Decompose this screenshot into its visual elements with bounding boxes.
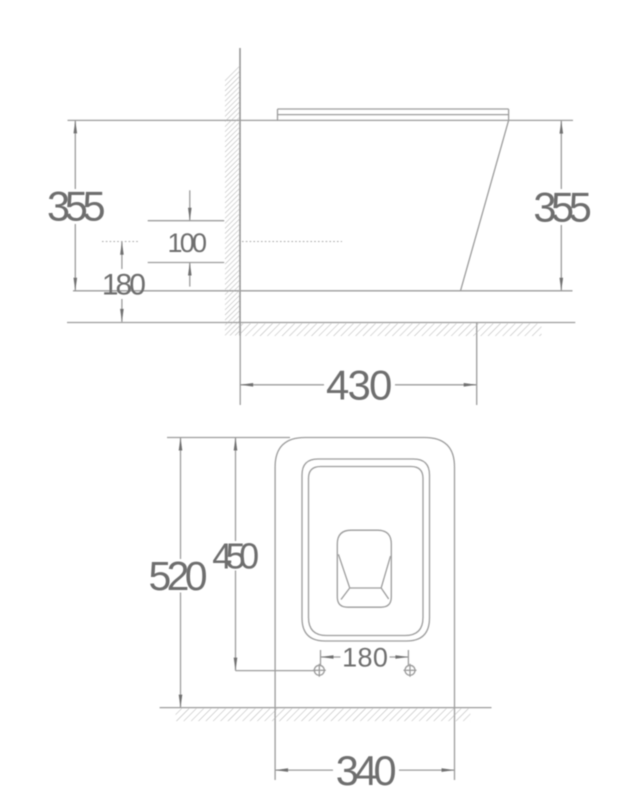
- svg-text:430: 430: [326, 362, 392, 409]
- svg-text:180: 180: [342, 642, 388, 672]
- svg-text:180: 180: [102, 268, 146, 301]
- svg-text:100: 100: [168, 228, 208, 258]
- svg-text:355: 355: [47, 183, 106, 230]
- svg-text:340: 340: [336, 747, 397, 794]
- svg-text:355: 355: [533, 183, 592, 230]
- svg-text:520: 520: [149, 553, 208, 599]
- svg-text:450: 450: [212, 535, 259, 576]
